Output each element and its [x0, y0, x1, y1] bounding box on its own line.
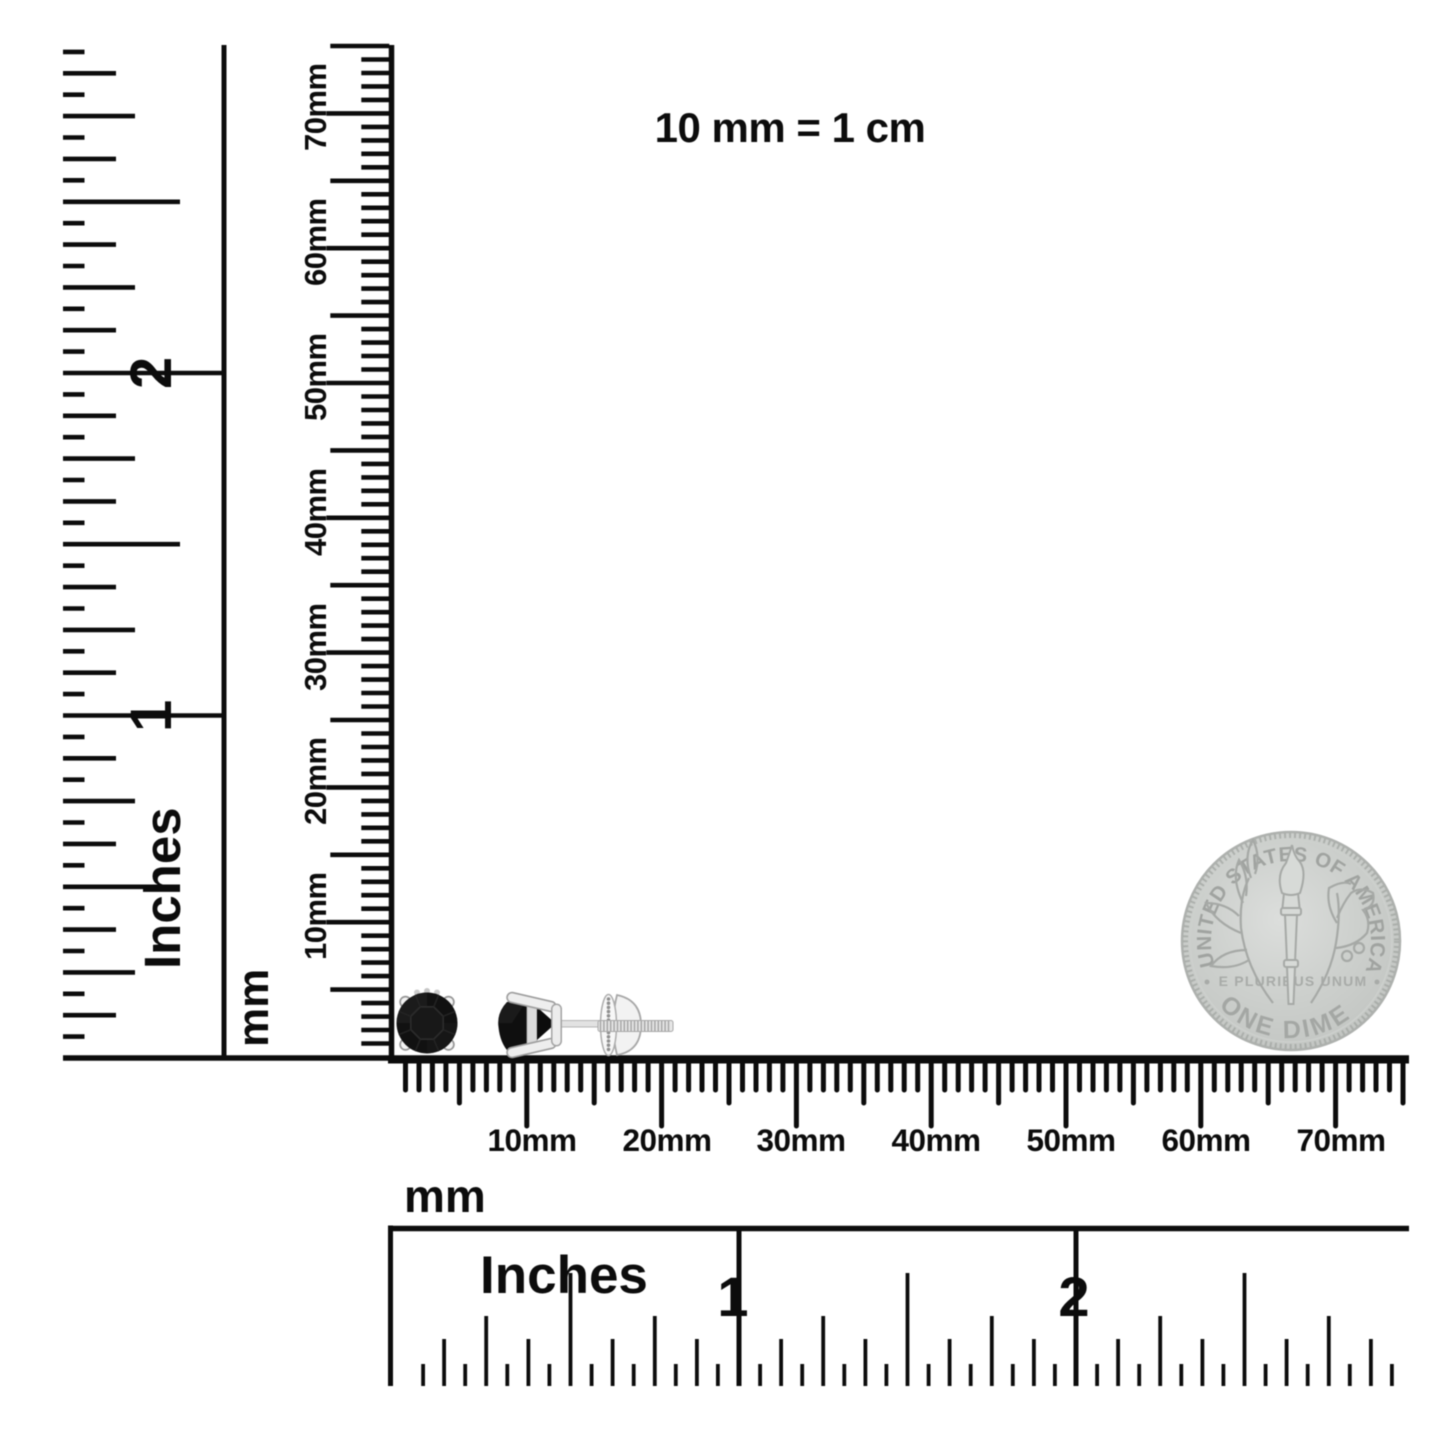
svg-text:70mm: 70mm [1296, 1122, 1385, 1158]
svg-text:60mm: 60mm [298, 198, 333, 286]
svg-text:50mm: 50mm [298, 333, 333, 421]
svg-text:1: 1 [119, 700, 184, 732]
svg-text:20mm: 20mm [298, 737, 333, 825]
svg-text:40mm: 40mm [891, 1122, 980, 1158]
svg-text:20mm: 20mm [622, 1122, 711, 1158]
svg-text:10mm: 10mm [487, 1122, 576, 1158]
svg-text:60mm: 60mm [1161, 1122, 1250, 1158]
svg-text:10mm: 10mm [298, 872, 333, 960]
svg-text:1: 1 [717, 1265, 748, 1328]
svg-text:mm: mm [404, 1170, 486, 1222]
svg-text:2: 2 [119, 357, 184, 389]
svg-text:30mm: 30mm [756, 1122, 845, 1158]
svg-text:10 mm = 1 cm: 10 mm = 1 cm [655, 104, 926, 151]
svg-text:50mm: 50mm [1026, 1122, 1115, 1158]
svg-text:mm: mm [229, 969, 278, 1047]
svg-text:30mm: 30mm [298, 603, 333, 691]
svg-text:2: 2 [1058, 1265, 1089, 1328]
svg-text:70mm: 70mm [298, 63, 333, 151]
svg-text:Inches: Inches [480, 1246, 648, 1305]
svg-text:40mm: 40mm [298, 468, 333, 556]
svg-text:Inches: Inches [134, 807, 191, 969]
